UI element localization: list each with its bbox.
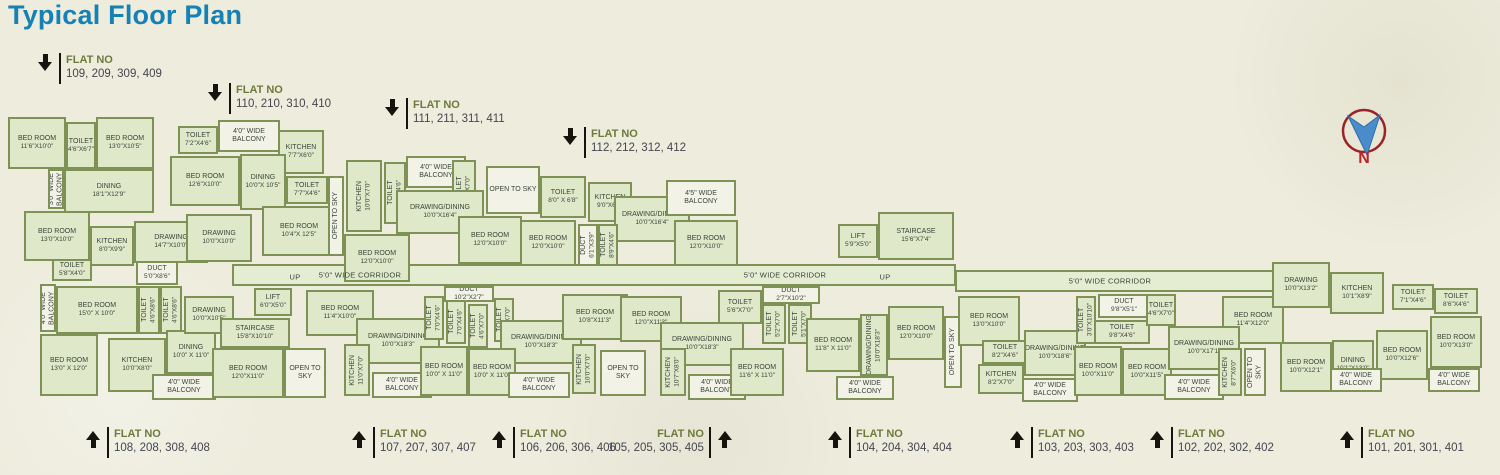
- flat-label-text: FLAT NO102, 202, 302, 402: [1178, 427, 1274, 456]
- down-arrow-icon: [563, 127, 577, 149]
- flat-label-text: FLAT NO107, 207, 307, 407: [380, 427, 476, 456]
- flat-numbers: 106, 206, 306, 406: [520, 441, 616, 456]
- arrow-stem: [1155, 439, 1160, 448]
- flat-numbers: 110, 210, 310, 410: [236, 97, 331, 112]
- arrow-head: [1010, 431, 1024, 440]
- flat-label-text: FLAT NO112, 212, 312, 412: [591, 127, 686, 156]
- arrow-stem: [722, 439, 727, 448]
- flat-numbers: 109, 209, 309, 409: [66, 67, 162, 82]
- flat-label-text: FLAT NO108, 208, 308, 408: [114, 427, 210, 456]
- flat-label: FLAT NO105, 205, 305, 405: [608, 427, 732, 458]
- down-arrow-icon: [208, 83, 222, 105]
- up-arrow-icon: [492, 427, 506, 449]
- flat-label: FLAT NO104, 204, 304, 404: [828, 427, 952, 458]
- flat-label: FLAT NO111, 211, 311, 411: [385, 98, 505, 129]
- flat-numbers: 104, 204, 304, 404: [856, 441, 952, 456]
- down-arrow-icon: [38, 53, 52, 75]
- divider-line: [513, 427, 515, 458]
- flat-numbers: 101, 201, 301, 401: [1368, 441, 1464, 456]
- flat-no-heading: FLAT NO: [520, 427, 616, 441]
- flat-label-text: FLAT NO104, 204, 304, 404: [856, 427, 952, 456]
- divider-line: [229, 83, 231, 114]
- flat-no-heading: FLAT NO: [236, 83, 331, 97]
- down-arrow-icon: [385, 98, 399, 120]
- flat-no-heading: FLAT NO: [380, 427, 476, 441]
- divider-line: [1031, 427, 1033, 458]
- flat-label: FLAT NO102, 202, 302, 402: [1150, 427, 1274, 458]
- flat-no-heading: FLAT NO: [591, 127, 686, 141]
- arrow-head: [208, 92, 222, 101]
- up-arrow-icon: [718, 427, 732, 449]
- arrow-head: [1150, 431, 1164, 440]
- divider-line: [373, 427, 375, 458]
- up-arrow-icon: [828, 427, 842, 449]
- flat-no-heading: FLAT NO: [1038, 427, 1134, 441]
- flat-numbers: 102, 202, 302, 402: [1178, 441, 1274, 456]
- flat-labels-layer: FLAT NO109, 209, 309, 409FLAT NO110, 210…: [0, 0, 1500, 475]
- flat-no-heading: FLAT NO: [114, 427, 210, 441]
- flat-label: FLAT NO112, 212, 312, 412: [563, 127, 686, 158]
- arrow-head: [718, 431, 732, 440]
- flat-numbers: 108, 208, 308, 408: [114, 441, 210, 456]
- up-arrow-icon: [352, 427, 366, 449]
- flat-numbers: 111, 211, 311, 411: [413, 112, 505, 127]
- arrow-stem: [497, 439, 502, 448]
- flat-label-text: FLAT NO101, 201, 301, 401: [1368, 427, 1464, 456]
- arrow-head: [1340, 431, 1354, 440]
- up-arrow-icon: [86, 427, 100, 449]
- page-background: Typical Floor Plan BED ROOM11'6"X10'0"TO…: [0, 0, 1500, 475]
- divider-line: [107, 427, 109, 458]
- compass-north-label: N: [1358, 150, 1370, 167]
- flat-no-heading: FLAT NO: [413, 98, 505, 112]
- up-arrow-icon: [1340, 427, 1354, 449]
- flat-label: FLAT NO108, 208, 308, 408: [86, 427, 210, 458]
- flat-label: FLAT NO110, 210, 310, 410: [208, 83, 331, 114]
- up-arrow-icon: [1010, 427, 1024, 449]
- flat-label-text: FLAT NO105, 205, 305, 405: [608, 427, 704, 456]
- arrow-stem: [1345, 439, 1350, 448]
- arrow-head: [563, 136, 577, 145]
- flat-label: FLAT NO107, 207, 307, 407: [352, 427, 476, 458]
- up-arrow-icon: [1150, 427, 1164, 449]
- flat-numbers: 107, 207, 307, 407: [380, 441, 476, 456]
- arrow-head: [385, 107, 399, 116]
- divider-line: [59, 53, 61, 84]
- flat-no-heading: FLAT NO: [1368, 427, 1464, 441]
- flat-no-heading: FLAT NO: [856, 427, 952, 441]
- flat-label: FLAT NO103, 203, 303, 403: [1010, 427, 1134, 458]
- divider-line: [849, 427, 851, 458]
- flat-label-text: FLAT NO111, 211, 311, 411: [413, 98, 505, 127]
- flat-no-heading: FLAT NO: [608, 427, 704, 441]
- arrow-stem: [91, 439, 96, 448]
- flat-label-text: FLAT NO110, 210, 310, 410: [236, 83, 331, 112]
- flat-numbers: 112, 212, 312, 412: [591, 141, 686, 156]
- flat-label-text: FLAT NO106, 206, 306, 406: [520, 427, 616, 456]
- divider-line: [406, 98, 408, 129]
- arrow-head: [828, 431, 842, 440]
- divider-line: [709, 427, 711, 458]
- flat-label-text: FLAT NO103, 203, 303, 403: [1038, 427, 1134, 456]
- flat-label: FLAT NO106, 206, 306, 406: [492, 427, 616, 458]
- divider-line: [1361, 427, 1363, 458]
- arrow-head: [492, 431, 506, 440]
- flat-label: FLAT NO101, 201, 301, 401: [1340, 427, 1464, 458]
- arrow-stem: [833, 439, 838, 448]
- arrow-head: [352, 431, 366, 440]
- flat-no-heading: FLAT NO: [66, 53, 162, 67]
- flat-label-text: FLAT NO109, 209, 309, 409: [66, 53, 162, 82]
- flat-label: FLAT NO109, 209, 309, 409: [38, 53, 162, 84]
- arrow-head: [38, 62, 52, 71]
- flat-numbers: 105, 205, 305, 405: [608, 441, 704, 456]
- flat-numbers: 103, 203, 303, 403: [1038, 441, 1134, 456]
- arrow-head: [86, 431, 100, 440]
- divider-line: [1171, 427, 1173, 458]
- divider-line: [584, 127, 586, 158]
- flat-no-heading: FLAT NO: [1178, 427, 1274, 441]
- arrow-stem: [357, 439, 362, 448]
- arrow-stem: [1015, 439, 1020, 448]
- compass: N: [1334, 100, 1394, 170]
